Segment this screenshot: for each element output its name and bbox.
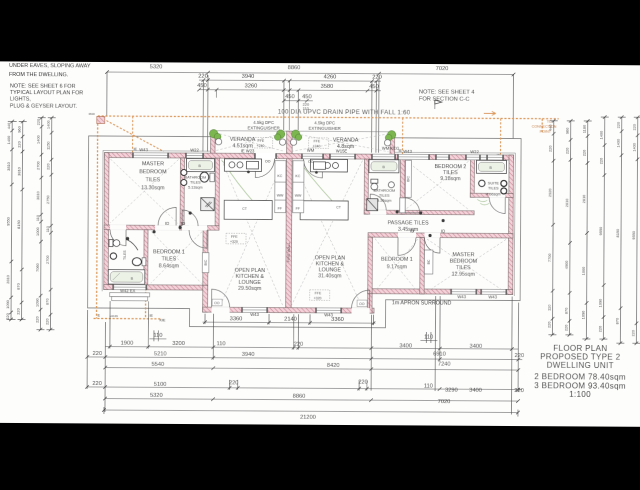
svg-text:3260: 3260 [245, 83, 258, 89]
svg-text:220: 220 [548, 145, 553, 152]
svg-text:450: 450 [285, 94, 295, 100]
svg-text:ID: ID [165, 221, 169, 226]
svg-text:OO: OO [359, 302, 365, 306]
svg-text:KC: KC [277, 174, 282, 178]
svg-text:4.5kg DPC: 4.5kg DPC [314, 120, 335, 125]
svg-text:BIC: BIC [406, 175, 410, 181]
svg-text:220: 220 [93, 351, 103, 357]
svg-text:9550: 9550 [631, 230, 636, 240]
svg-text:1400: 1400 [616, 138, 621, 148]
svg-text:9550: 9550 [6, 216, 11, 226]
svg-text:220: 220 [229, 380, 239, 386]
svg-text:BATHROOM: BATHROOM [185, 176, 207, 180]
svg-text:EXTINGUISHER: EXTINGUISHER [309, 126, 341, 131]
svg-text:110: 110 [35, 214, 40, 221]
svg-text:+240: +240 [257, 144, 265, 148]
svg-text:5.36sqm: 5.36sqm [377, 199, 392, 203]
svg-text:7700: 7700 [547, 253, 552, 263]
svg-text:1090: 1090 [581, 310, 586, 320]
svg-text:220: 220 [514, 388, 524, 394]
svg-text:1400: 1400 [632, 142, 637, 152]
svg-text:7060: 7060 [35, 262, 40, 272]
svg-text:2920: 2920 [547, 188, 552, 198]
svg-text:8150: 8150 [16, 219, 21, 229]
svg-text:220: 220 [582, 149, 587, 156]
svg-text:BEDROOM 1: BEDROOM 1 [381, 257, 413, 263]
svg-text:13.30sqm: 13.30sqm [141, 185, 165, 191]
svg-text:870: 870 [16, 282, 21, 289]
svg-text:220: 220 [358, 380, 368, 386]
svg-text:2700: 2700 [45, 255, 50, 265]
svg-text:220: 220 [565, 147, 570, 154]
svg-text:220: 220 [34, 316, 39, 323]
svg-text:3.45sqm: 3.45sqm [398, 227, 419, 233]
svg-text:31.40sqm: 31.40sqm [318, 273, 342, 279]
svg-text:1400: 1400 [6, 135, 11, 145]
svg-text:870: 870 [45, 298, 50, 305]
svg-text:FOR SECTION C-C: FOR SECTION C-C [419, 96, 470, 102]
svg-text:4.5kg DPC: 4.5kg DPC [253, 120, 274, 125]
svg-text:1900: 1900 [121, 341, 134, 347]
svg-text:220: 220 [632, 123, 637, 130]
svg-text:OO: OO [214, 301, 220, 305]
svg-text:21200: 21200 [300, 415, 316, 421]
svg-text:ID: ID [181, 221, 185, 226]
svg-text:9550: 9550 [598, 226, 603, 236]
svg-text:KIE: KIE [159, 318, 166, 322]
svg-text:1180: 1180 [582, 124, 587, 133]
svg-text:MASTER: MASTER [142, 161, 164, 167]
svg-text:870: 870 [564, 307, 569, 314]
svg-text:BEDROOM 1: BEDROOM 1 [153, 249, 185, 255]
svg-text:VERANDA: VERANDA [230, 137, 256, 143]
svg-text:DWELLING UNIT: DWELLING UNIT [547, 361, 614, 370]
svg-text:+320: +320 [314, 296, 322, 300]
svg-text:1400: 1400 [36, 134, 41, 144]
svg-text:5.13sqm: 5.13sqm [188, 186, 203, 190]
svg-text:SUITE: SUITE [488, 181, 500, 185]
svg-text:FIRE WALL: FIRE WALL [286, 241, 291, 262]
svg-text:7240: 7240 [438, 362, 451, 368]
svg-text:W15E: W15E [336, 148, 348, 153]
svg-text:3940: 3940 [242, 352, 255, 358]
svg-text:3940: 3940 [242, 74, 255, 80]
svg-text:W43: W43 [250, 312, 259, 317]
svg-text:960: 960 [565, 127, 570, 134]
svg-text:BEDROOM: BEDROOM [450, 259, 477, 265]
svg-text:TILES: TILES [161, 256, 176, 262]
svg-text:9.17sqm: 9.17sqm [387, 264, 408, 270]
svg-text:CONNECTION: CONNECTION [532, 125, 557, 129]
svg-text:3400: 3400 [469, 388, 482, 394]
svg-text:VERANDA: VERANDA [333, 137, 359, 143]
svg-text:3200: 3200 [172, 341, 185, 347]
svg-text:PLUG & GEYSER LAYOUT.: PLUG & GEYSER LAYOUT. [10, 103, 77, 109]
svg-text:110: 110 [217, 341, 226, 347]
svg-text:BEDROOM: BEDROOM [139, 169, 166, 175]
svg-text:110: 110 [153, 333, 162, 339]
svg-text:W22: W22 [470, 149, 479, 154]
svg-text:W43: W43 [403, 149, 412, 154]
svg-text:12.95sqm: 12.95sqm [452, 272, 476, 278]
svg-text:W22: W22 [190, 148, 199, 153]
svg-text:1090: 1090 [35, 297, 40, 307]
svg-text:RCD: RCD [89, 112, 95, 116]
svg-text:3810: 3810 [35, 190, 40, 200]
svg-text:8860: 8860 [293, 394, 306, 400]
svg-text:5100: 5100 [154, 382, 167, 388]
svg-text:s=0.09: s=0.09 [110, 314, 119, 318]
svg-text:TILES: TILES [123, 250, 127, 260]
svg-text:220: 220 [597, 325, 602, 332]
svg-text:TYPICAL LAYOUT PLAN FOR: TYPICAL LAYOUT PLAN FOR [10, 90, 83, 96]
svg-text:FF: FF [278, 207, 282, 211]
svg-text:2700: 2700 [35, 160, 40, 170]
svg-text:960: 960 [17, 125, 22, 132]
svg-text:ID: ID [441, 229, 445, 234]
svg-text:FF: FF [296, 207, 300, 211]
svg-text:UNDER EAVES, SLOPING AWAY: UNDER EAVES, SLOPING AWAY [9, 63, 91, 70]
svg-text:TO: TO [547, 120, 552, 124]
svg-text:IE: IE [150, 314, 154, 318]
svg-text:220: 220 [92, 381, 102, 387]
svg-text:3400: 3400 [399, 343, 412, 349]
svg-text:110: 110 [547, 304, 552, 311]
svg-text:FFE: FFE [315, 291, 322, 295]
svg-text:1:100: 1:100 [569, 390, 591, 399]
svg-text:2810: 2810 [5, 274, 10, 284]
svg-text:3810: 3810 [16, 166, 21, 176]
svg-text:4260: 4260 [324, 74, 337, 80]
svg-text:3360: 3360 [230, 316, 243, 322]
svg-text:220: 220 [515, 353, 525, 359]
svg-text:220: 220 [45, 163, 50, 170]
svg-text:3400: 3400 [470, 344, 483, 350]
svg-text:1400: 1400 [599, 130, 604, 140]
svg-text:1m APRON SURROUND: 1m APRON SURROUND [392, 300, 452, 306]
svg-text:BIC: BIC [204, 259, 208, 265]
svg-text:LIGHTS,: LIGHTS, [10, 96, 32, 102]
svg-text:8860: 8860 [288, 65, 301, 71]
svg-text:OO: OO [265, 160, 271, 164]
svg-text:220: 220 [36, 118, 41, 125]
svg-text:ID: ID [410, 228, 414, 233]
svg-text:TILES: TILES [190, 181, 201, 185]
svg-text:EXTINGUISHER: EXTINGUISHER [248, 125, 280, 130]
svg-text:8420: 8420 [327, 363, 340, 369]
svg-text:3290: 3290 [445, 388, 458, 394]
svg-text:4900: 4900 [564, 260, 569, 270]
svg-text:FFE: FFE [231, 235, 238, 239]
svg-text:+320: +320 [230, 240, 238, 244]
svg-text:MASTER: MASTER [452, 252, 474, 258]
svg-text:FROM THE DWELLING.: FROM THE DWELLING. [9, 72, 68, 78]
svg-text:WM KEG: WM KEG [382, 146, 399, 151]
svg-text:2810: 2810 [581, 194, 586, 204]
svg-text:5320: 5320 [150, 64, 163, 70]
svg-text:NOTE: SEE SHEET 6 FOR: NOTE: SEE SHEET 6 FOR [10, 83, 76, 89]
svg-text:220: 220 [616, 121, 621, 128]
svg-text:220: 220 [546, 321, 551, 328]
svg-text:1150: 1150 [46, 141, 51, 150]
svg-text:6910: 6910 [433, 352, 446, 358]
svg-text:1090: 1090 [598, 298, 603, 308]
svg-text:NOTE: SEE SHEET 4: NOTE: SEE SHEET 4 [419, 89, 475, 95]
svg-text:450: 450 [197, 83, 207, 89]
svg-text:OO: OO [308, 160, 314, 164]
svg-text:110: 110 [45, 225, 50, 232]
svg-text:W43: W43 [139, 147, 148, 152]
svg-text:220: 220 [372, 75, 382, 81]
svg-text:29.50sqm: 29.50sqm [238, 286, 262, 292]
svg-text:TILES: TILES [145, 177, 160, 183]
svg-text:220: 220 [630, 329, 635, 336]
svg-text:5320: 5320 [150, 393, 163, 399]
svg-text:7020: 7020 [436, 66, 449, 72]
svg-text:3360: 3360 [331, 317, 344, 323]
svg-text:WM: WM [307, 148, 315, 153]
svg-text:100 DIA UPVC DRAIN PIPE WITH F: 100 DIA UPVC DRAIN PIPE WITH FALL 1:60 [278, 109, 411, 117]
svg-text:870: 870 [614, 317, 619, 324]
svg-text:WW: WW [295, 194, 302, 198]
svg-text:3810: 3810 [6, 161, 11, 171]
svg-text:W42 EX: W42 EX [120, 288, 136, 293]
svg-text:450: 450 [369, 84, 379, 90]
svg-text:1090: 1090 [5, 299, 10, 309]
svg-text:220: 220 [44, 318, 49, 325]
svg-text:5540: 5540 [151, 362, 164, 368]
svg-text:440: 440 [6, 122, 11, 129]
svg-text:450: 450 [302, 94, 312, 100]
svg-text:1400: 1400 [46, 120, 51, 130]
svg-text:220: 220 [294, 342, 304, 348]
svg-text:WW: WW [277, 194, 284, 198]
svg-text:1000: 1000 [35, 226, 40, 236]
svg-text:110: 110 [303, 106, 310, 111]
svg-text:220: 220 [598, 157, 603, 164]
svg-text:7020: 7020 [438, 399, 451, 405]
svg-text:220: 220 [5, 312, 10, 319]
svg-text:IE W23: IE W23 [241, 148, 255, 153]
svg-text:220: 220 [198, 74, 208, 80]
svg-text:TILES: TILES [379, 194, 390, 198]
svg-text:BATHROOM: BATHROOM [373, 189, 395, 193]
svg-text:9.18sqm: 9.18sqm [440, 176, 461, 182]
svg-text:2140: 2140 [284, 317, 297, 323]
svg-text:W43: W43 [457, 294, 466, 299]
svg-text:FFE: FFE [314, 139, 321, 143]
svg-text:110: 110 [424, 334, 433, 340]
svg-text:8150: 8150 [615, 228, 620, 238]
svg-text:5210: 5210 [154, 351, 167, 357]
svg-text:440: 440 [548, 124, 553, 131]
svg-text:220: 220 [16, 307, 21, 314]
svg-text:KC: KC [295, 174, 300, 178]
svg-text:TILES: TILES [456, 265, 471, 271]
svg-text:110: 110 [424, 383, 433, 389]
svg-text:3580: 3580 [321, 84, 334, 90]
svg-text:8.64sqm: 8.64sqm [159, 263, 180, 269]
svg-text:220: 220 [17, 140, 22, 147]
svg-text:1000: 1000 [581, 266, 586, 276]
svg-text:W43: W43 [488, 294, 497, 299]
svg-text:FFE: FFE [258, 139, 265, 143]
svg-text:PASSAGE TILES: PASSAGE TILES [388, 220, 430, 226]
svg-text:BC: BC [427, 259, 431, 264]
svg-text:2750: 2750 [45, 195, 50, 205]
svg-text:4.66sqm: 4.66sqm [486, 192, 501, 196]
svg-text:2810: 2810 [564, 198, 569, 208]
svg-text:TILES: TILES [488, 186, 499, 190]
svg-text:220: 220 [563, 324, 568, 331]
